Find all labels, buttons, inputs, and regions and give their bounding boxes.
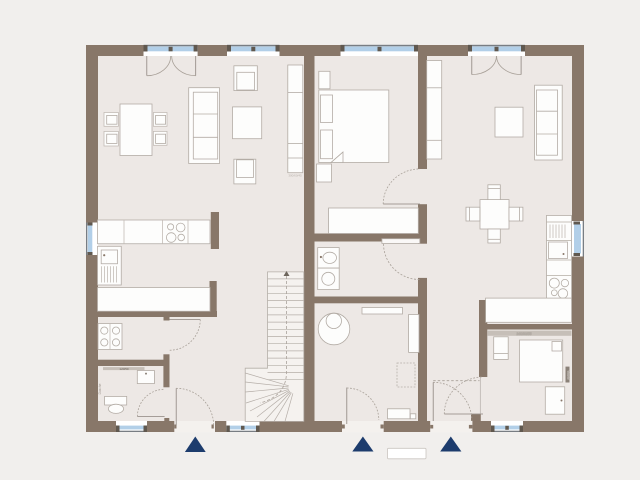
svg-text:300/60/45: 300/60/45 — [288, 174, 302, 178]
svg-text:Dusche: Dusche — [98, 383, 102, 394]
svg-text:90/200: 90/200 — [567, 370, 571, 379]
svg-text:120/50: 120/50 — [119, 367, 129, 371]
svg-text:240/60/55: 240/60/55 — [516, 332, 531, 336]
